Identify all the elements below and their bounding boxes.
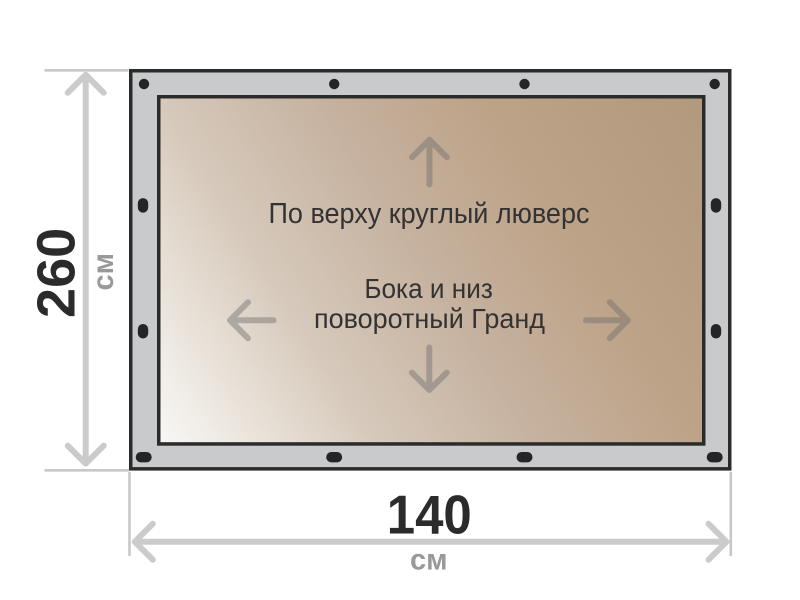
svg-text:см: см (410, 544, 448, 577)
svg-text:Бока и низ: Бока и низ (364, 273, 493, 304)
svg-text:140: 140 (387, 483, 472, 545)
svg-text:см: см (87, 253, 120, 291)
svg-text:260: 260 (26, 228, 86, 318)
svg-text:поворотный Гранд: поворотный Гранд (314, 303, 545, 334)
svg-text:По верху круглый люверс: По верху круглый люверс (269, 198, 590, 230)
